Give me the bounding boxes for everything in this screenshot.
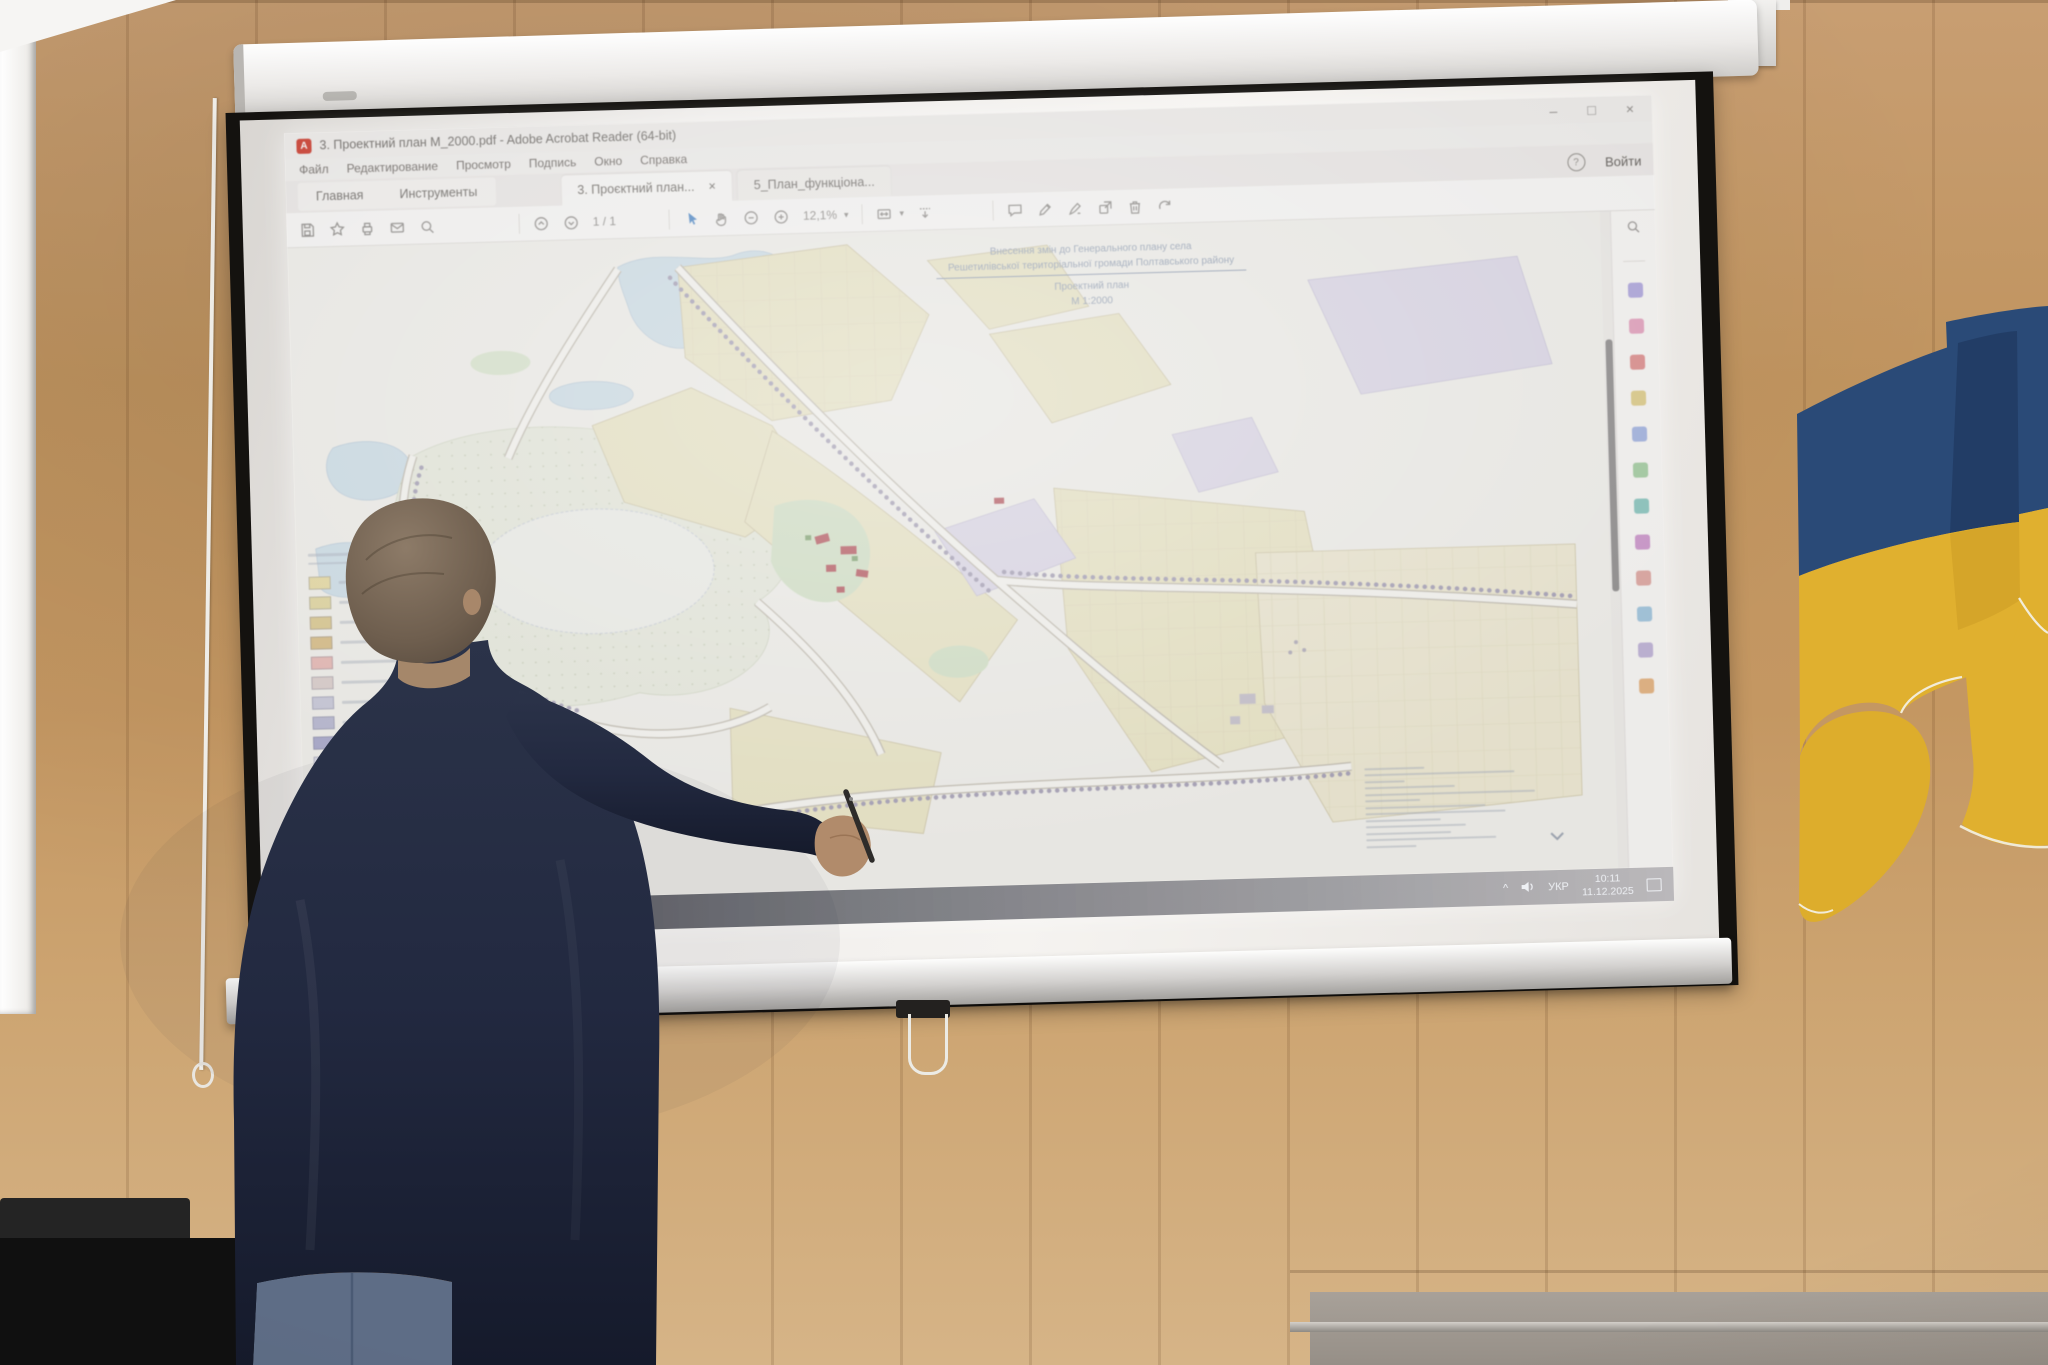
presentation-room-photo: A 3. Проектний план М_2000.pdf - Adobe A…: [0, 0, 2048, 1365]
ukrainian-flags: [1797, 306, 2048, 922]
presenter-hand: [815, 815, 871, 876]
presenter-head: [346, 498, 496, 663]
presenter-ear: [463, 589, 481, 615]
foreground-overlay: [0, 0, 2048, 1365]
